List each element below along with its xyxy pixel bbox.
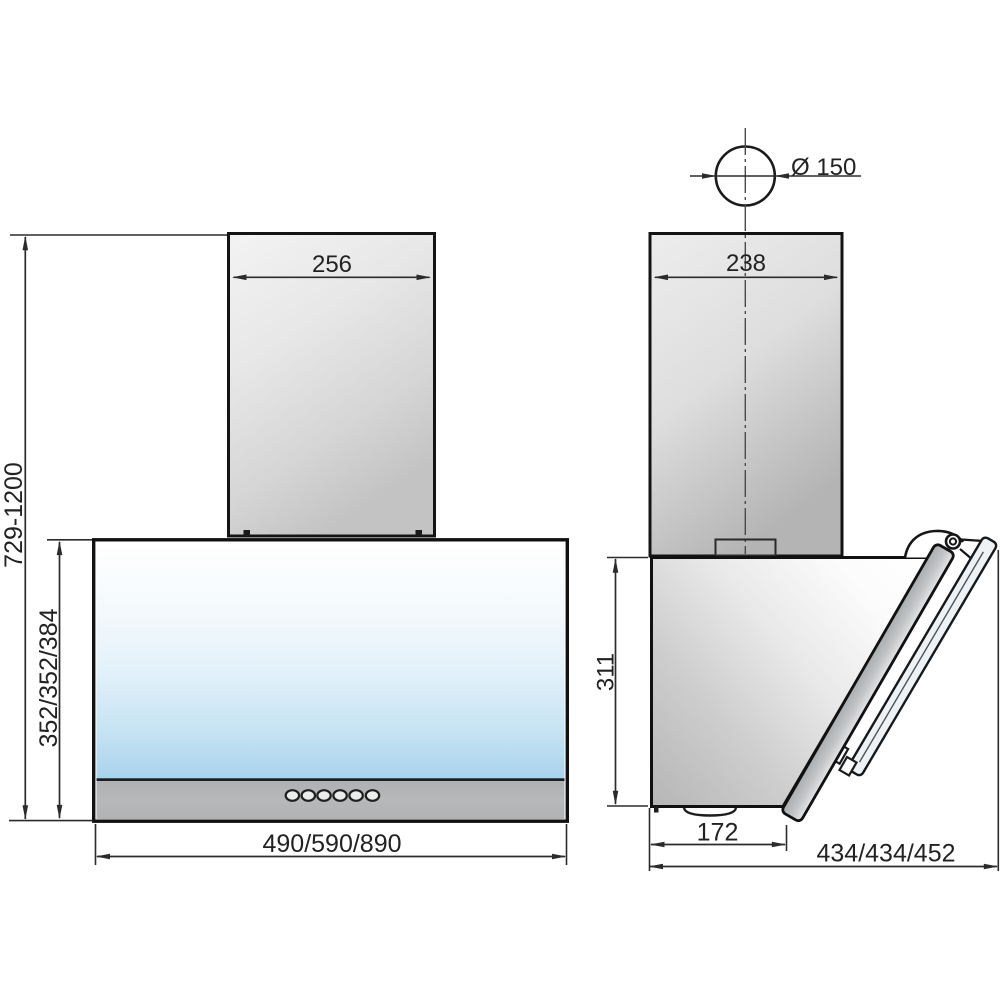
svg-text:434/434/452: 434/434/452	[816, 840, 955, 868]
svg-text:729-1200: 729-1200	[0, 462, 28, 568]
svg-text:352/352/384: 352/352/384	[35, 608, 63, 747]
svg-text:Ø 150: Ø 150	[791, 154, 856, 181]
svg-text:256: 256	[312, 251, 352, 278]
svg-text:172: 172	[697, 819, 739, 847]
svg-text:490/590/890: 490/590/890	[262, 830, 401, 858]
svg-text:238: 238	[726, 250, 766, 277]
svg-text:311: 311	[593, 653, 620, 691]
